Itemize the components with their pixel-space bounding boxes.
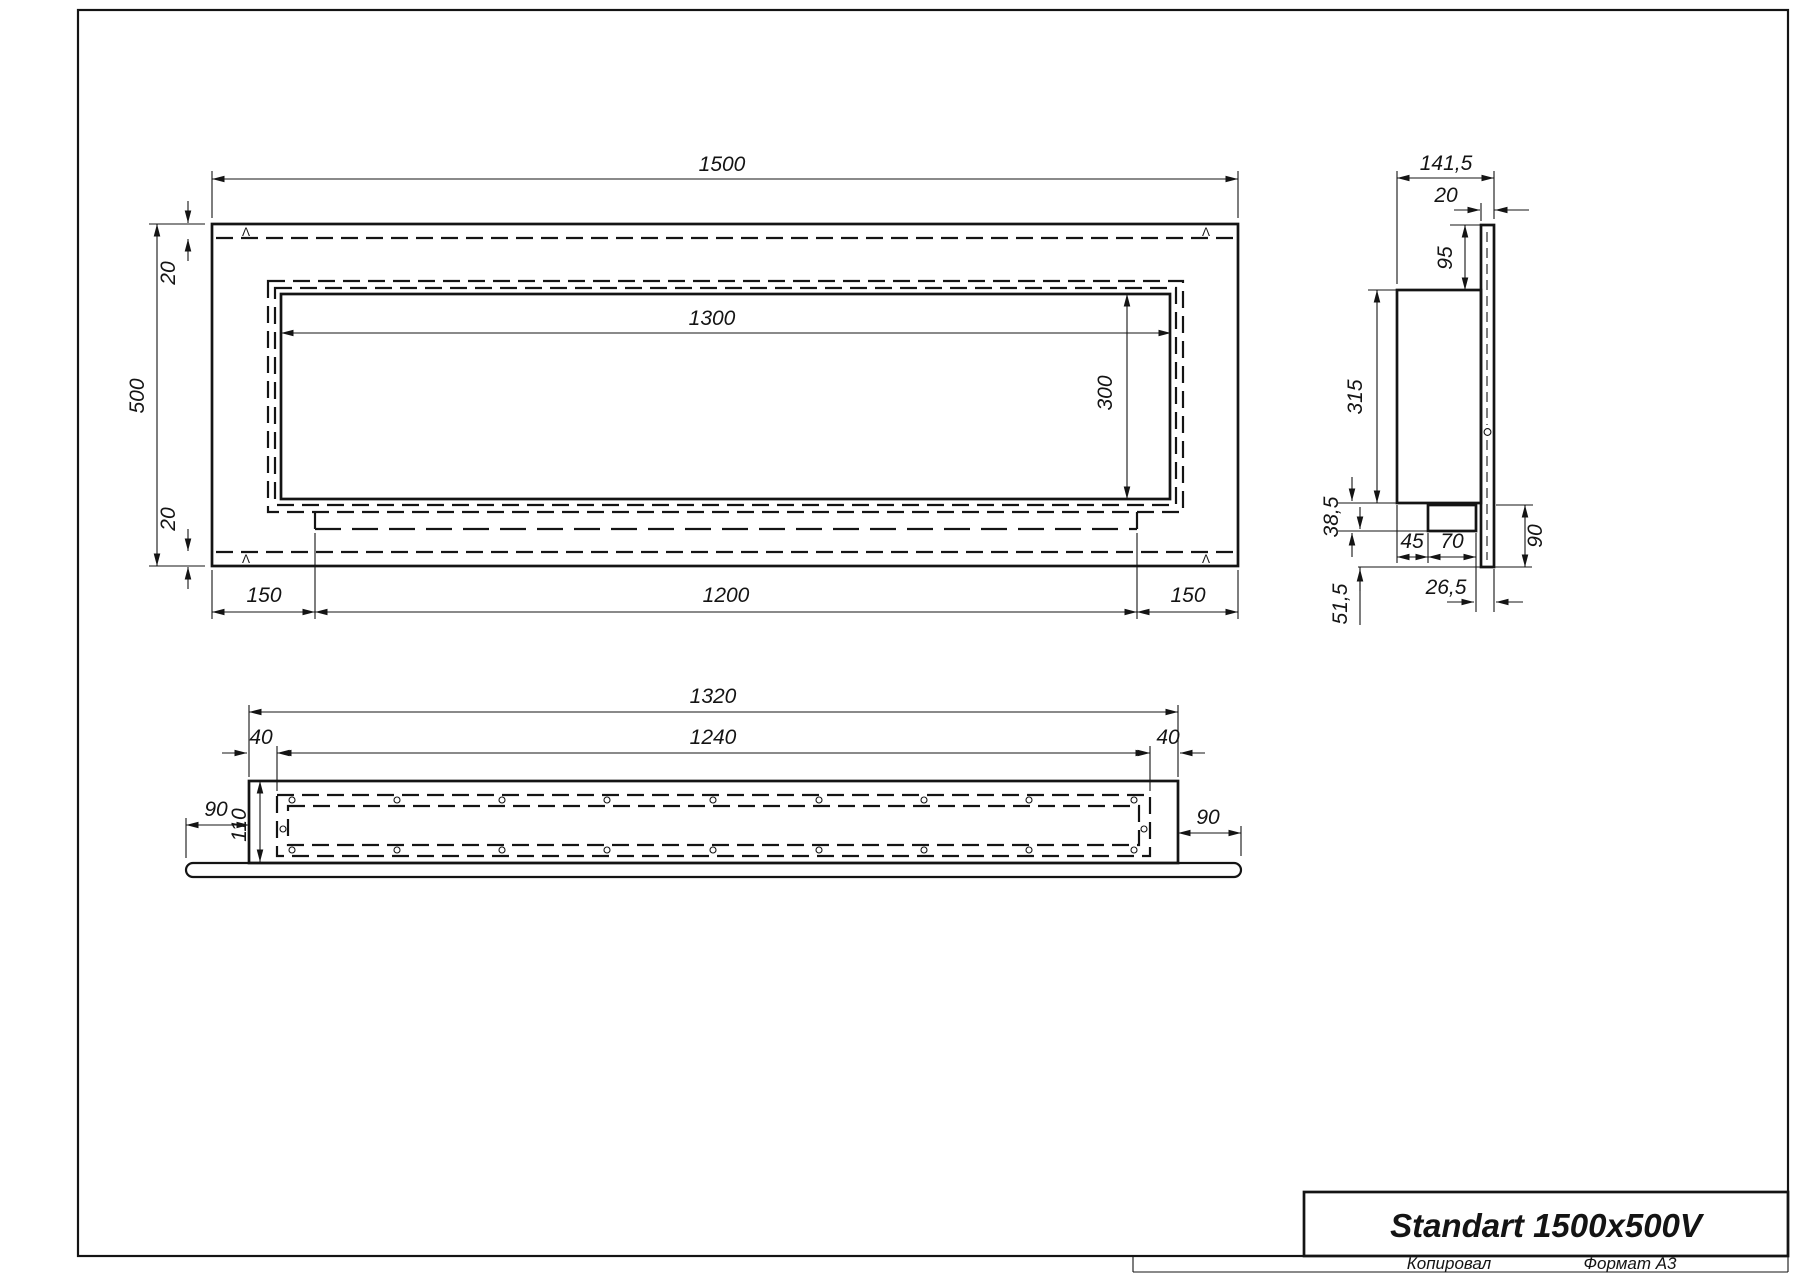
drawing-sheet: Standart 1500x500V Копировал Формат А3 Λ… — [0, 0, 1800, 1273]
dim-front-top-offset: 20 — [157, 261, 180, 286]
dim-slot-width: 1200 — [703, 584, 750, 607]
dim-side-drop: 90 — [1524, 524, 1547, 548]
weld-mark-icon: Λ — [1202, 552, 1210, 566]
dim-side-body-height: 315 — [1344, 379, 1367, 414]
dim-front-bottom-offset: 20 — [157, 507, 180, 532]
dim-bottom-inset-right: 40 — [1156, 726, 1180, 749]
sheet-frame — [78, 10, 1788, 1272]
dim-side-step: 38,5 — [1320, 496, 1343, 537]
side-view-geometry — [1338, 225, 1532, 567]
dim-side-lip-height: 51,5 — [1329, 583, 1352, 624]
dim-side-depth: 141,5 — [1420, 152, 1473, 175]
dim-side-tray-offset: 45 — [1400, 530, 1424, 553]
footer-copy-label: Копировал — [1407, 1254, 1492, 1273]
dim-side-lip-depth: 26,5 — [1425, 576, 1467, 599]
footer-format-label: Формат А3 — [1583, 1254, 1677, 1273]
dim-bottom-ext-right: 90 — [1196, 806, 1220, 829]
drawing-title: Standart 1500x500V — [1390, 1207, 1705, 1244]
dim-bottom-depth: 110 — [228, 808, 251, 842]
dim-opening-height: 300 — [1094, 375, 1117, 410]
dim-side-flange: 20 — [1433, 184, 1458, 207]
dim-front-height: 500 — [126, 378, 149, 413]
weld-mark-icon: Λ — [242, 225, 250, 239]
drawing-canvas: Standart 1500x500V Копировал Формат А3 Λ… — [0, 0, 1800, 1273]
dim-bottom-slot: 1240 — [690, 726, 737, 749]
bottom-view-geometry — [186, 781, 1241, 877]
dim-right-margin: 150 — [1170, 584, 1205, 607]
dim-side-tray-width: 70 — [1440, 530, 1464, 553]
dim-side-top-inset: 95 — [1434, 246, 1457, 270]
weld-mark-icon: Λ — [242, 552, 250, 566]
dim-bottom-overall: 1320 — [690, 685, 737, 708]
dim-opening-width: 1300 — [689, 307, 736, 330]
weld-mark-icon: Λ — [1202, 225, 1210, 239]
dim-bottom-inset-left: 40 — [249, 726, 273, 749]
dim-left-margin: 150 — [246, 584, 281, 607]
front-view-geometry — [212, 224, 1238, 566]
side-view-dimensions — [1352, 171, 1533, 625]
dim-front-width: 1500 — [699, 153, 746, 176]
dim-bottom-ext-left: 90 — [204, 798, 228, 821]
